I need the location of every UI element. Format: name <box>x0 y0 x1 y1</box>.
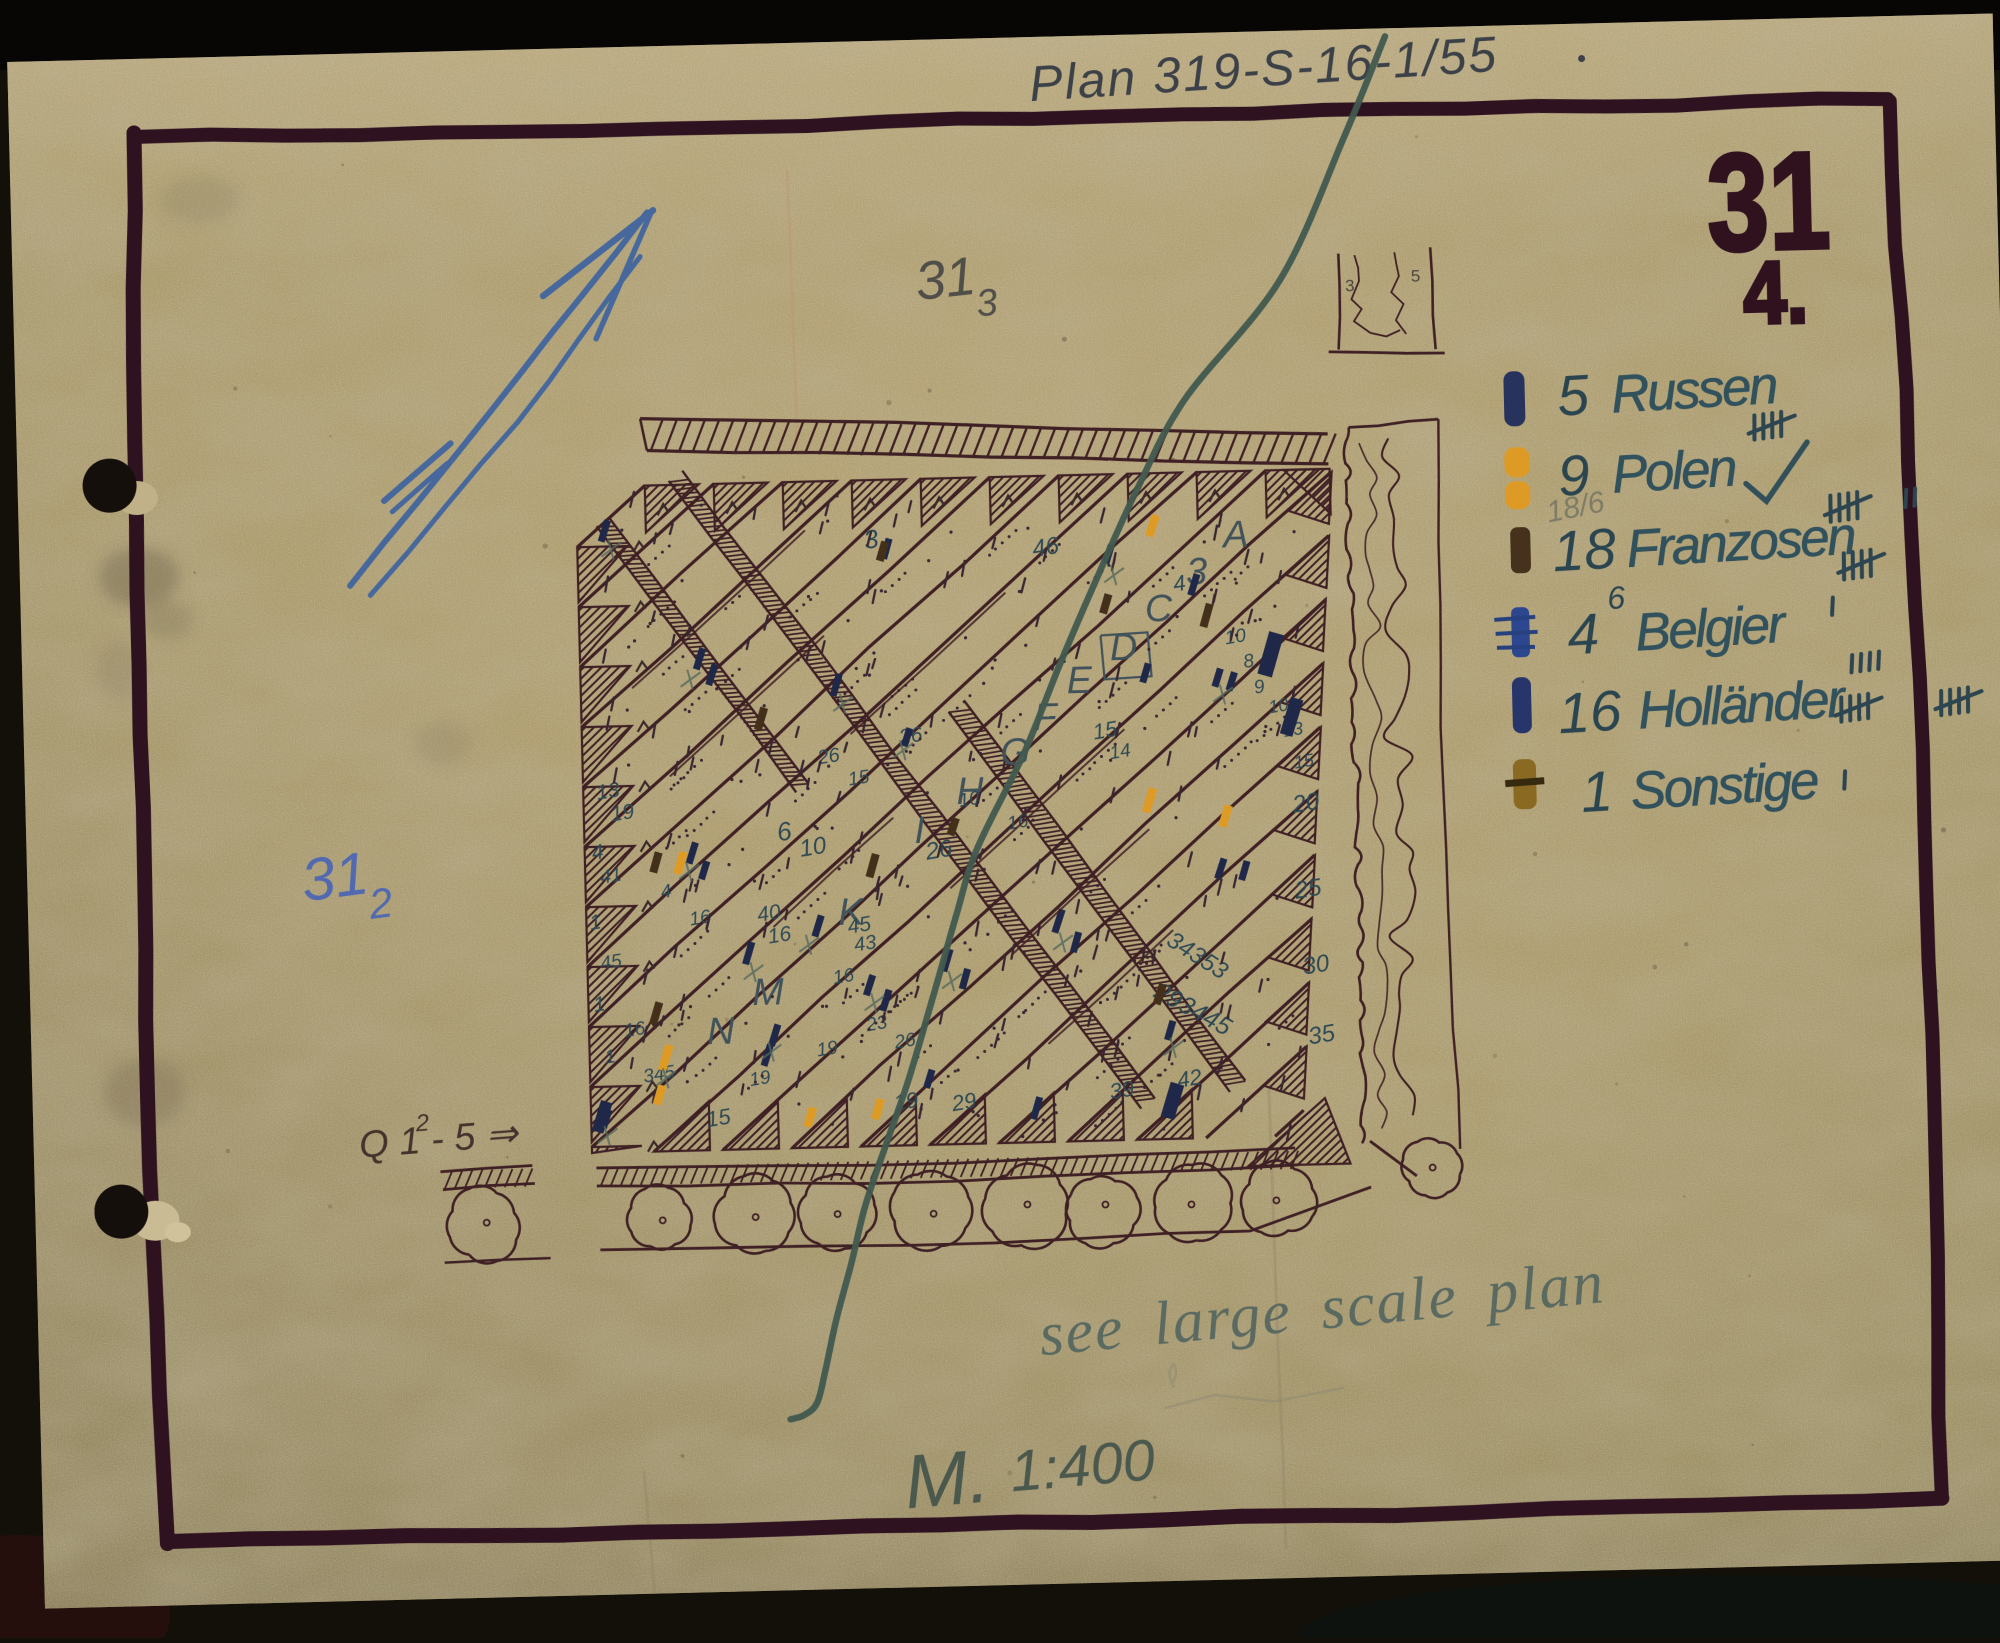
svg-text:46: 46 <box>1030 532 1061 563</box>
svg-text:4.: 4. <box>1742 242 1809 342</box>
svg-text:16: 16 <box>831 965 856 989</box>
svg-text:16: 16 <box>1006 810 1031 834</box>
svg-text:N: N <box>707 1011 736 1054</box>
svg-text:C: C <box>1144 588 1173 631</box>
svg-text:19: 19 <box>748 1067 773 1091</box>
svg-text:M: M <box>752 971 785 1014</box>
svg-text:16: 16 <box>766 922 793 949</box>
svg-text:Belgier: Belgier <box>1634 595 1790 663</box>
svg-text:20: 20 <box>1290 788 1322 819</box>
svg-text:M.: M. <box>901 1434 992 1526</box>
svg-text:Q 1: Q 1 <box>358 1120 422 1167</box>
svg-text:6: 6 <box>1606 579 1626 616</box>
svg-text:43: 43 <box>852 931 878 956</box>
svg-text:39: 39 <box>1108 1076 1136 1105</box>
svg-text:1: 1 <box>1579 759 1614 825</box>
svg-text:30: 30 <box>1300 949 1331 980</box>
svg-text:10: 10 <box>1223 625 1248 649</box>
svg-text:4: 4 <box>1566 602 1601 668</box>
svg-text:15: 15 <box>1091 716 1120 745</box>
svg-text:5: 5 <box>1555 363 1591 429</box>
svg-text:2: 2 <box>414 1109 430 1137</box>
svg-text:- 5 ⇒: - 5 ⇒ <box>429 1112 521 1161</box>
svg-text:5: 5 <box>1411 267 1421 286</box>
svg-text:E: E <box>1066 660 1093 703</box>
svg-text:13: 13 <box>594 778 621 805</box>
svg-text:15: 15 <box>847 766 872 790</box>
svg-text:35: 35 <box>1306 1019 1337 1050</box>
svg-text:A: A <box>1221 514 1249 557</box>
svg-text:19: 19 <box>609 800 636 827</box>
svg-text:41: 41 <box>599 865 623 889</box>
svg-text:15: 15 <box>704 1103 733 1132</box>
svg-text:31: 31 <box>912 246 978 312</box>
svg-text:Holländer: Holländer <box>1636 669 1848 740</box>
svg-text:45: 45 <box>599 950 624 974</box>
svg-text:Polen: Polen <box>1610 438 1737 504</box>
svg-text:25: 25 <box>1292 874 1324 905</box>
svg-text:26: 26 <box>892 1029 918 1053</box>
svg-text:31: 31 <box>297 839 372 914</box>
svg-text:3: 3 <box>1345 276 1355 295</box>
svg-text:16: 16 <box>1556 679 1623 747</box>
svg-text:Sonstige: Sonstige <box>1629 751 1819 821</box>
svg-text:1:400: 1:400 <box>1007 1427 1157 1504</box>
svg-text:19: 19 <box>815 1037 840 1061</box>
svg-text:10: 10 <box>797 832 828 863</box>
